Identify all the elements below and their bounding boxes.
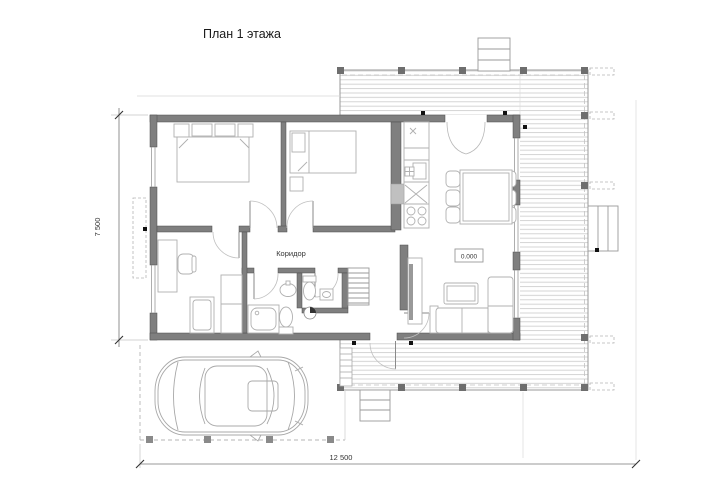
carport xyxy=(140,345,345,443)
car-trunk-line xyxy=(174,362,179,430)
car-mirror-top xyxy=(250,351,261,357)
deck-top-strip xyxy=(340,70,588,115)
pillow xyxy=(215,124,235,136)
car-cabin xyxy=(205,366,267,426)
nightstand-left xyxy=(174,124,189,137)
window-bedroom1-left xyxy=(152,147,156,187)
washbasin xyxy=(280,284,296,297)
chair xyxy=(446,207,460,223)
carport-posts xyxy=(146,436,334,443)
desk xyxy=(158,240,177,292)
dining-table xyxy=(460,170,512,224)
door-bedroom1 xyxy=(250,201,277,228)
double-bed xyxy=(177,137,249,182)
staircase xyxy=(348,268,369,305)
basin-tap xyxy=(286,281,290,285)
chair xyxy=(446,190,460,206)
dining-set xyxy=(446,170,516,224)
dimension-left: 7 500 xyxy=(93,108,148,347)
burner xyxy=(418,217,426,225)
steps-top xyxy=(478,38,510,71)
water-heater xyxy=(304,307,316,319)
burner xyxy=(407,207,415,215)
window-office-left xyxy=(152,265,156,313)
car-hood-line xyxy=(288,362,295,430)
floor-plan-drawing: 0.000 xyxy=(0,0,710,502)
toilet-tank xyxy=(303,276,316,282)
toilet-bowl xyxy=(304,282,316,300)
office-furniture xyxy=(158,240,242,333)
car-windshield xyxy=(267,368,274,424)
page-title: План 1 этажа xyxy=(203,27,281,41)
kitchen-duct xyxy=(391,184,404,204)
daybed xyxy=(190,297,214,333)
small-basin xyxy=(320,289,333,300)
burner xyxy=(418,207,426,215)
tv xyxy=(409,264,413,320)
elevation-marker: 0.000 xyxy=(455,249,483,262)
car-rear-window xyxy=(200,368,206,424)
pillow xyxy=(292,133,305,152)
door-bathroom xyxy=(254,273,278,299)
steps-right xyxy=(588,206,618,251)
corridor-label: Коридор xyxy=(276,249,306,258)
floor-plan-page: 0.000 xyxy=(0,0,710,502)
door-office xyxy=(213,232,239,258)
toilet-tank xyxy=(279,327,293,334)
pillow xyxy=(192,124,212,136)
entry-double-door xyxy=(447,122,485,154)
burner xyxy=(407,217,415,225)
chair-back xyxy=(192,256,196,272)
window-living-right-2 xyxy=(515,270,519,318)
chimney-dashed-outline xyxy=(133,198,146,278)
steps-deck-left xyxy=(340,348,352,386)
dimension-height-label: 7 500 xyxy=(93,218,102,237)
chair xyxy=(446,171,460,187)
door-bedroom2 xyxy=(287,201,313,228)
car-sunroof xyxy=(248,381,278,411)
nightstand xyxy=(290,177,303,191)
deck-bottom-strip xyxy=(340,340,588,390)
bedroom2-furniture xyxy=(290,131,356,191)
nightstand-right xyxy=(238,124,253,137)
elevation-label: 0.000 xyxy=(461,254,478,261)
bathroom-fixtures xyxy=(248,281,296,334)
deck-right-strip xyxy=(520,115,588,340)
shower-drain xyxy=(255,311,259,315)
dimension-width-label: 12 500 xyxy=(330,453,353,462)
bedroom1-furniture xyxy=(174,124,253,182)
living-room-furniture: 0.000 xyxy=(408,249,513,333)
kitchen-sink xyxy=(413,163,426,179)
car xyxy=(155,351,308,441)
toilet-bowl xyxy=(280,307,293,327)
sofa-chaise xyxy=(488,277,513,333)
shower-tray xyxy=(248,305,279,333)
steps-bottom xyxy=(360,390,390,421)
